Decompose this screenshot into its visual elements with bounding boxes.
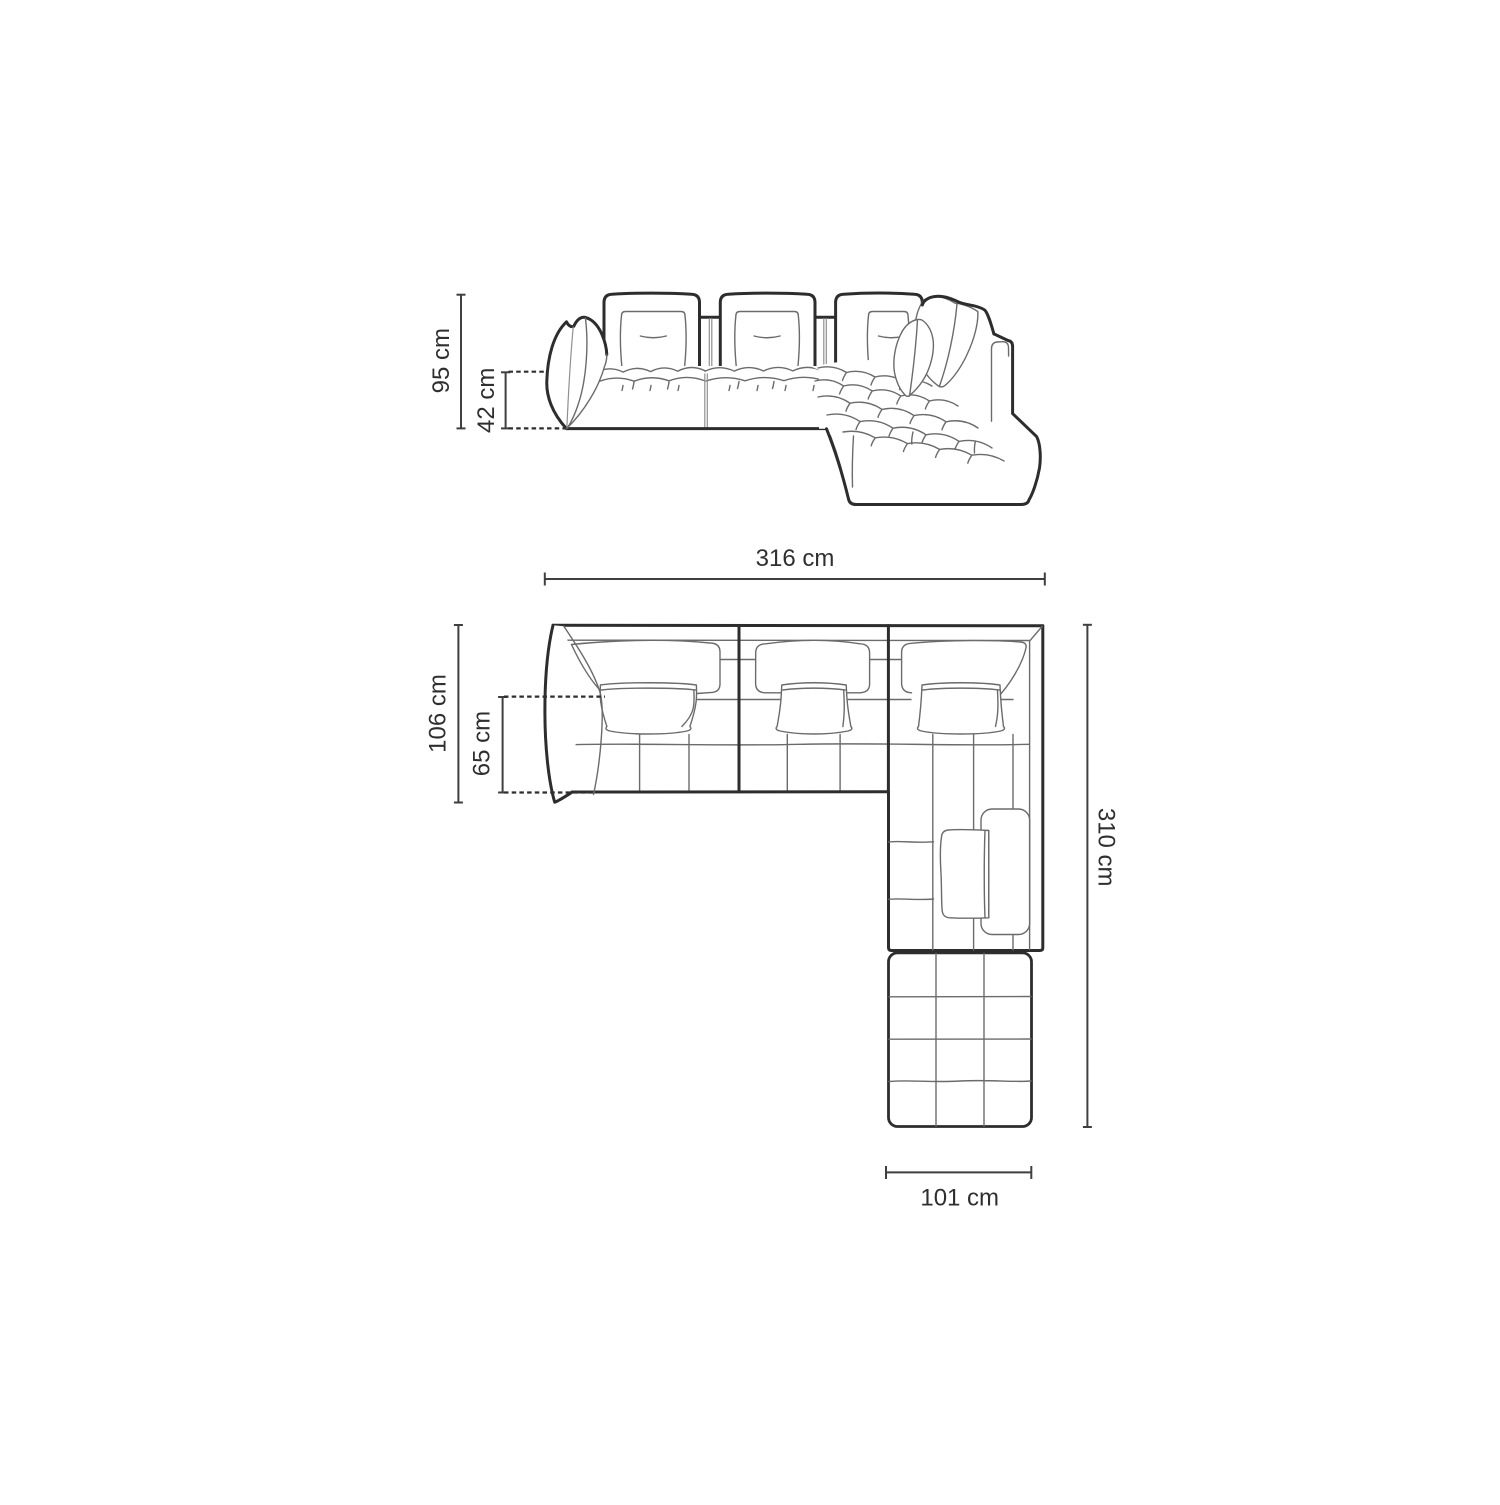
svg-text:310 cm: 310 cm [1093,808,1120,887]
svg-text:316 cm: 316 cm [756,545,835,572]
svg-text:95 cm: 95 cm [428,328,455,393]
svg-text:42 cm: 42 cm [473,368,500,433]
svg-text:101 cm: 101 cm [920,1185,999,1212]
svg-text:106 cm: 106 cm [424,674,451,753]
svg-text:65 cm: 65 cm [469,711,496,776]
